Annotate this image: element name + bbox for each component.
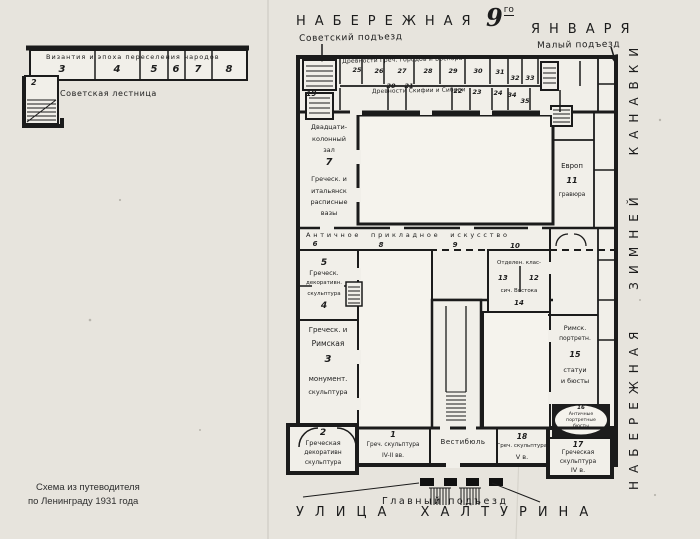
staircase-icon (303, 60, 336, 90)
room7-number: 7 (302, 158, 356, 168)
room16-label: портретные (556, 419, 606, 424)
inset-room-number: 3 (56, 65, 68, 75)
corridor-room-number: 9 (449, 242, 461, 249)
inset-title: Византия и эпоха переселения народов (46, 54, 220, 61)
street-label-january: ЯНВАРЯ (531, 23, 639, 36)
room18-label: Греч. скульптура (495, 444, 549, 450)
room5-label: Греческ. (299, 270, 349, 277)
date-number: 9 (486, 3, 503, 32)
inset-room-number: 4 (111, 65, 123, 75)
soviet-entrance-label: Советский подъезд (299, 33, 403, 44)
room2-number: 2 (294, 429, 352, 438)
room1-label: IV-II вв. (359, 453, 427, 459)
room15-label: и бюсты (553, 378, 597, 385)
room12-number: 12 (529, 275, 539, 282)
room5-label: скульптура (299, 292, 349, 298)
room3-label: Римская (301, 340, 355, 348)
room2-label: декоративн (294, 450, 352, 456)
gallery-room-number: 31 (495, 69, 505, 76)
room5-number: 5 (299, 259, 349, 268)
gallery-room-number: 28 (423, 68, 433, 75)
date-suffix: го (504, 5, 514, 16)
room15-number: 15 (553, 351, 597, 359)
caption-line: Схема из путеводителя (36, 483, 140, 493)
room17-label: скульптура (549, 459, 607, 465)
room17-label: IV в. (549, 467, 607, 474)
room1-label: Греч. скульптура (359, 443, 427, 449)
room3-number: 3 (301, 355, 355, 365)
room5-label: декоративн. (299, 281, 349, 287)
gallery-room-number: 23 (472, 89, 482, 96)
corridor-room-number: 8 (375, 242, 387, 249)
room7-label: зал (302, 147, 356, 154)
room7-label: расписные (302, 199, 356, 206)
corridor-label: Античное прикладное искусство (306, 232, 510, 239)
room4-number: 4 (299, 302, 349, 311)
main-entrance-label: Главный подъезд (382, 497, 508, 507)
room16-number: 16 (556, 406, 606, 412)
room2-label: скульптура (294, 460, 352, 466)
room14-number: 14 (488, 300, 550, 307)
room7-label: Двадцати- (302, 124, 356, 131)
room15-label: статуи (553, 367, 597, 374)
room18-label: V в. (495, 454, 549, 461)
gallery-room-number: 34 (507, 92, 517, 99)
gallery-room-number: 35 (520, 98, 530, 105)
street-label-embankment: НАБЕРЕЖНАЯ (296, 15, 480, 28)
gallery-room-number: 19 (306, 90, 316, 98)
room2-label: Греческая (294, 440, 352, 447)
room15-label: Римск. (553, 325, 597, 332)
inset-room-number: 2 (31, 79, 37, 87)
gallery-room-number: 24 (493, 90, 503, 97)
gallery-room-number: 33 (525, 75, 535, 82)
room17-label: Греческая (549, 450, 607, 456)
room3-label: монумент. (301, 376, 355, 383)
room7-label: Греческ. и (302, 176, 356, 183)
room16-label: бюсты (556, 425, 606, 430)
rooms12-14-label: Отделен. клас- (489, 261, 549, 267)
inset-room-number: 7 (192, 65, 204, 75)
room11-label: гравюра (551, 192, 593, 198)
inset-room-number: 5 (148, 65, 160, 75)
gallery-room-number: 32 (510, 75, 520, 82)
street-label-khalturina: УЛИЦА ХАЛТУРИНА (296, 506, 599, 519)
soviet-staircase-label: Советская лестница (60, 90, 157, 98)
room18-number: 18 (495, 433, 549, 441)
room7-label: вазы (302, 210, 356, 217)
gallery-room-number: 26 (374, 68, 384, 75)
staircase-icon (541, 62, 558, 90)
corridor-room-number: 10 (509, 243, 521, 250)
room7-label: итальянск (302, 188, 356, 195)
corridor-room-number: 6 (309, 241, 321, 248)
room3-label: скульптура (301, 389, 355, 396)
room11-number: 11 (551, 177, 593, 185)
room7-label: колонный (302, 136, 356, 143)
gallery-room-number: 27 (397, 68, 407, 75)
inset-room-number: 8 (223, 65, 235, 75)
caption-line: по Ленинграду 1931 года (28, 497, 138, 507)
room3-label: Греческ. и (301, 327, 355, 334)
room13-number: 13 (498, 275, 508, 282)
rooms12-14-label: сич. Востока (488, 289, 550, 295)
room17-number: 17 (549, 441, 607, 449)
street-label-date: 9го (486, 6, 514, 30)
gallery-room-number: 29 (448, 68, 458, 75)
room16-label: Античные (556, 413, 606, 418)
room1-number: 1 (359, 431, 427, 439)
small-entrance-label: Малый подъезд (537, 41, 620, 51)
vestibule-label: Вестибюль (431, 439, 495, 446)
gallery-room-number: 30 (473, 68, 483, 75)
inset-room-number: 6 (170, 65, 182, 75)
staircase-icon (551, 106, 572, 126)
guidebook-floor-plan-page: НАБЕРЕЖНАЯ 9го ЯНВАРЯ УЛИЦА ХАЛТУРИНА НА… (0, 0, 700, 539)
room15-label: портретн. (553, 336, 597, 342)
gallery-room-number: 25 (352, 67, 362, 74)
room11-label: Европ (551, 163, 593, 170)
